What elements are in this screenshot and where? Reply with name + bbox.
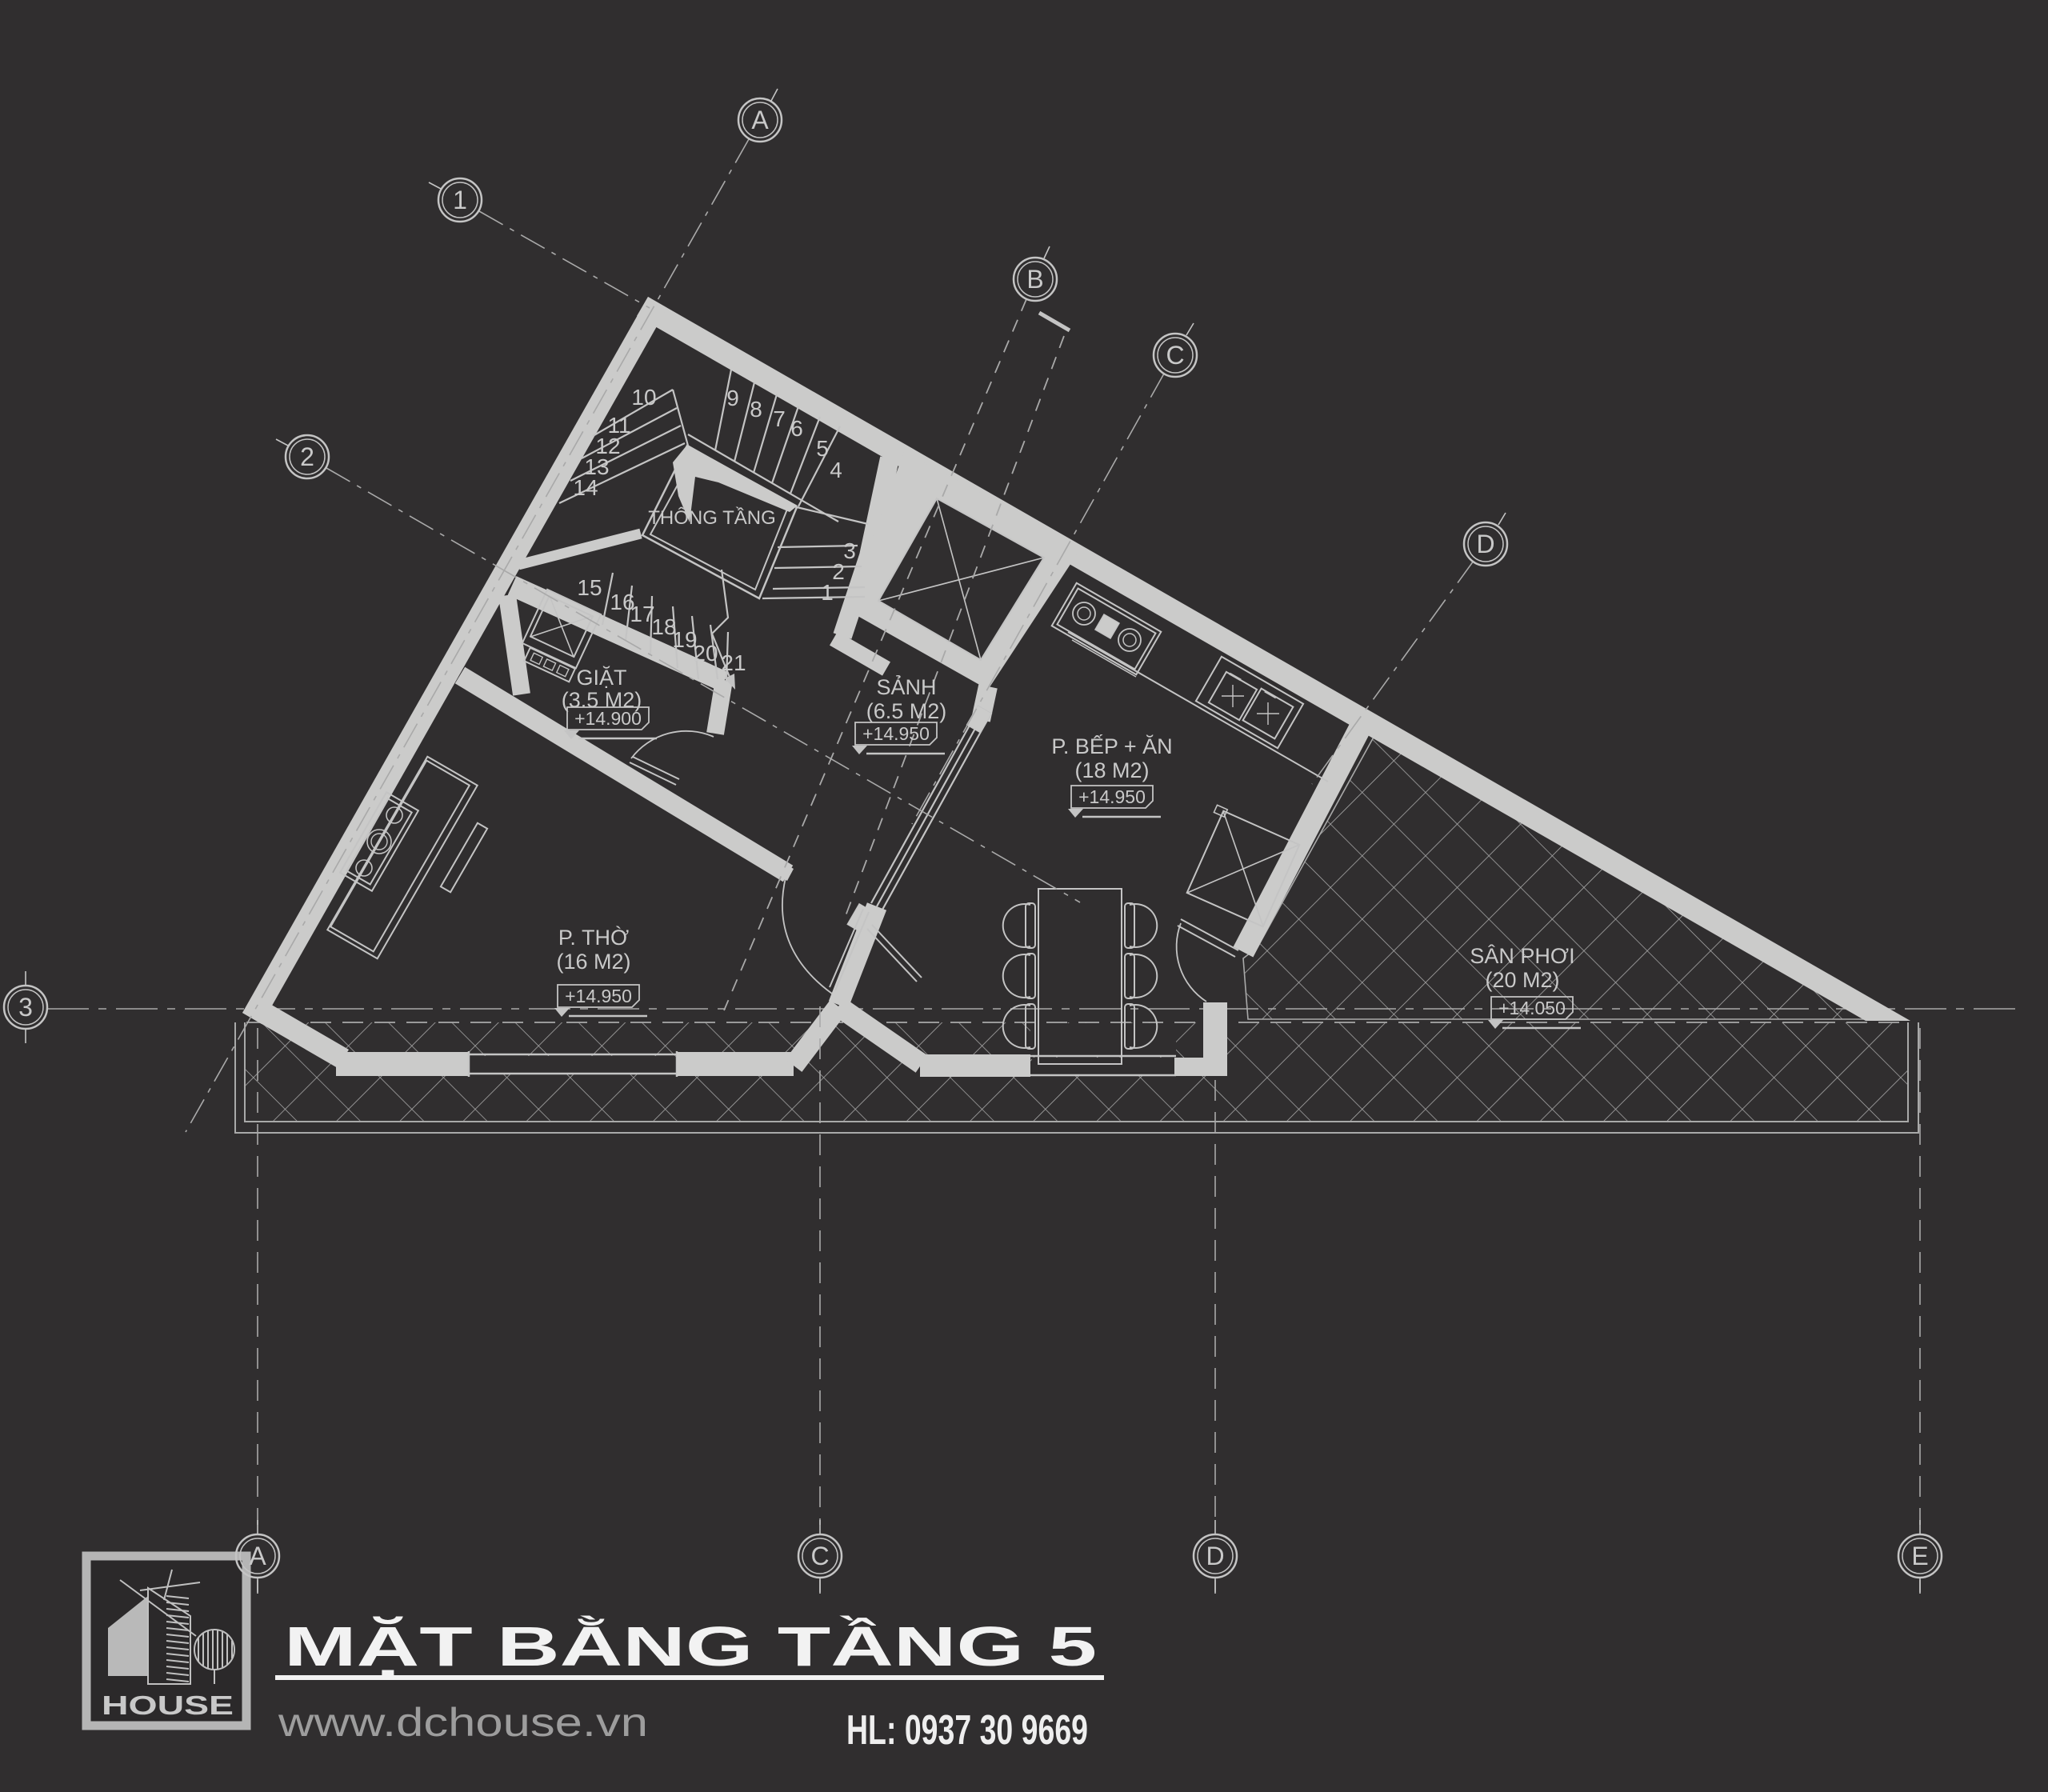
svg-text:3: 3 (18, 993, 33, 1022)
svg-text:HL: 0937 30 9669: HL: 0937 30 9669 (846, 1707, 1088, 1754)
svg-text:SẢNH: SẢNH (876, 674, 936, 699)
svg-text:20: 20 (693, 641, 718, 666)
svg-text:6: 6 (790, 416, 803, 441)
svg-text:8: 8 (750, 397, 762, 422)
svg-text:www.dchouse.vn: www.dchouse.vn (278, 1700, 648, 1745)
svg-text:21: 21 (721, 650, 746, 675)
svg-text:3: 3 (843, 538, 856, 563)
svg-text:A: A (249, 1542, 266, 1570)
svg-text:(16 M2): (16 M2) (556, 950, 630, 974)
svg-text:7: 7 (773, 406, 786, 431)
svg-text:+14.950: +14.950 (862, 723, 930, 744)
svg-text:C: C (810, 1542, 829, 1570)
svg-text:THÔNG TẦNG: THÔNG TẦNG (648, 506, 776, 529)
svg-text:D: D (1206, 1542, 1224, 1570)
svg-text:10: 10 (631, 385, 656, 410)
svg-text:+14.050: +14.050 (1498, 998, 1566, 1018)
svg-text:MẶT BẰNG TẦNG 5: MẶT BẰNG TẦNG 5 (284, 1615, 1097, 1678)
svg-text:15: 15 (577, 575, 602, 600)
svg-text:(20 M2): (20 M2) (1485, 968, 1559, 992)
svg-text:9: 9 (726, 386, 739, 410)
svg-text:5: 5 (816, 436, 829, 461)
svg-text:14: 14 (573, 475, 598, 500)
svg-text:B: B (1026, 265, 1043, 294)
svg-text:GIẶT: GIẶT (576, 666, 626, 690)
svg-text:P. THỜ: P. THỜ (558, 925, 629, 950)
svg-text:4: 4 (830, 458, 842, 482)
svg-text:+14.950: +14.950 (565, 986, 632, 1006)
svg-text:+14.950: +14.950 (1078, 786, 1146, 807)
svg-text:2: 2 (300, 442, 314, 471)
svg-text:C: C (1166, 341, 1184, 370)
svg-text:(6.5 M2): (6.5 M2) (866, 699, 947, 723)
svg-text:E: E (1911, 1542, 1928, 1570)
svg-text:1: 1 (453, 186, 467, 214)
svg-text:(18 M2): (18 M2) (1074, 758, 1149, 782)
svg-text:A: A (751, 106, 769, 134)
svg-text:HOUSE: HOUSE (102, 1690, 234, 1720)
svg-text:D: D (1476, 530, 1494, 558)
svg-text:P. BẾP + ĂN: P. BẾP + ĂN (1051, 734, 1172, 758)
svg-text:SÂN PHƠI: SÂN PHƠI (1470, 943, 1574, 968)
svg-text:+14.900: +14.900 (574, 708, 642, 729)
